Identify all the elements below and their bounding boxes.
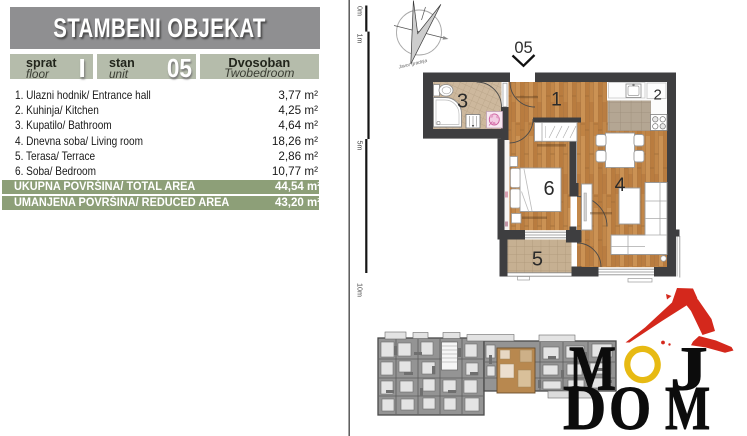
svg-text:5: 5 [532,249,543,271]
svg-text:O: O [609,373,651,436]
svg-text:D: D [563,374,606,436]
svg-text:2: 2 [654,86,662,103]
svg-text:3: 3 [457,91,468,113]
svg-text:4: 4 [615,174,626,196]
svg-text:10m: 10m [356,283,365,297]
svg-text:5m: 5m [356,141,365,151]
svg-text:0m: 0m [356,6,365,16]
svg-text:05: 05 [514,39,532,57]
svg-text:M: M [665,374,710,436]
svg-text:1m: 1m [356,34,365,44]
svg-text:1: 1 [551,89,562,111]
svg-text:6: 6 [543,178,554,200]
